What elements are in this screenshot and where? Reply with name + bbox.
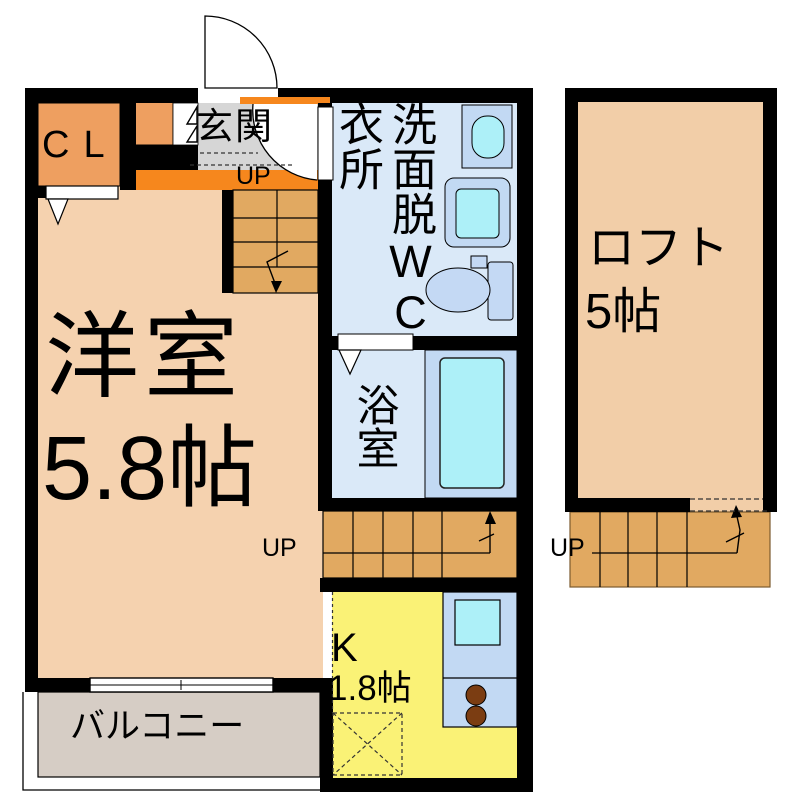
shoe-cabinet <box>135 102 173 145</box>
entrance-door-arc <box>205 16 277 88</box>
wall-loft-left <box>565 88 578 512</box>
wall-room-bottom-left <box>25 678 90 692</box>
loft-label: ロフト <box>588 224 729 271</box>
wall-closet <box>120 103 136 190</box>
wall-loft-bottom <box>565 498 690 512</box>
bathtub <box>440 358 504 488</box>
washroom-label-col2: 衣所 <box>335 101 380 191</box>
sink-basin <box>472 116 504 158</box>
wall-bottom <box>320 778 533 792</box>
kitchen-size-label: 1.8帖 <box>328 671 412 706</box>
main-room-label: 洋室 <box>45 310 243 404</box>
floor-plan: CL 玄関 UP 衣所 洗面脱WC 浴室 洋室 5.8帖 UP K 1.8帖 バ… <box>0 0 800 800</box>
loft-size-label: 5帖 <box>585 288 661 337</box>
wall-shoe-cabinet <box>135 145 198 170</box>
stairs1-up-label: UP <box>236 164 271 189</box>
toilet-tank <box>488 262 513 320</box>
staircase-entrance <box>233 190 318 293</box>
entrance-sill <box>240 97 330 103</box>
wall-left <box>25 88 38 692</box>
wall-loft-right <box>763 88 777 512</box>
stove-burner-1 <box>466 685 486 705</box>
staircase-middle <box>323 511 517 578</box>
entrance-label: 玄関 <box>196 108 274 145</box>
washroom-label-col1: 洗面脱WC <box>388 101 433 338</box>
closet-label: CL <box>42 126 119 164</box>
closet-door <box>46 186 118 199</box>
loft-opening-floor <box>690 498 763 512</box>
staircase-loft <box>570 505 770 587</box>
stairs2-up-label: UP <box>262 536 297 561</box>
bathroom-label: 浴室 <box>352 383 395 469</box>
balcony-label: バルコニー <box>70 709 244 744</box>
wall-closet-bottom <box>38 186 46 198</box>
stove-burner-2 <box>466 706 486 726</box>
kitchen-sink <box>455 600 500 645</box>
main-room-size-label: 5.8帖 <box>42 424 257 514</box>
washing-machine-drum <box>456 189 499 238</box>
washroom-door-leaf <box>318 107 333 180</box>
kitchen-label: K <box>331 628 358 668</box>
wall-stairs-left <box>222 190 233 293</box>
wall-loft-top <box>565 88 777 102</box>
stairs3-up-label: UP <box>550 536 585 561</box>
wall-stairs-bottom <box>320 578 533 592</box>
wall-right <box>517 88 533 792</box>
wall-bath-bottom <box>320 498 533 511</box>
toilet-button <box>471 256 487 268</box>
